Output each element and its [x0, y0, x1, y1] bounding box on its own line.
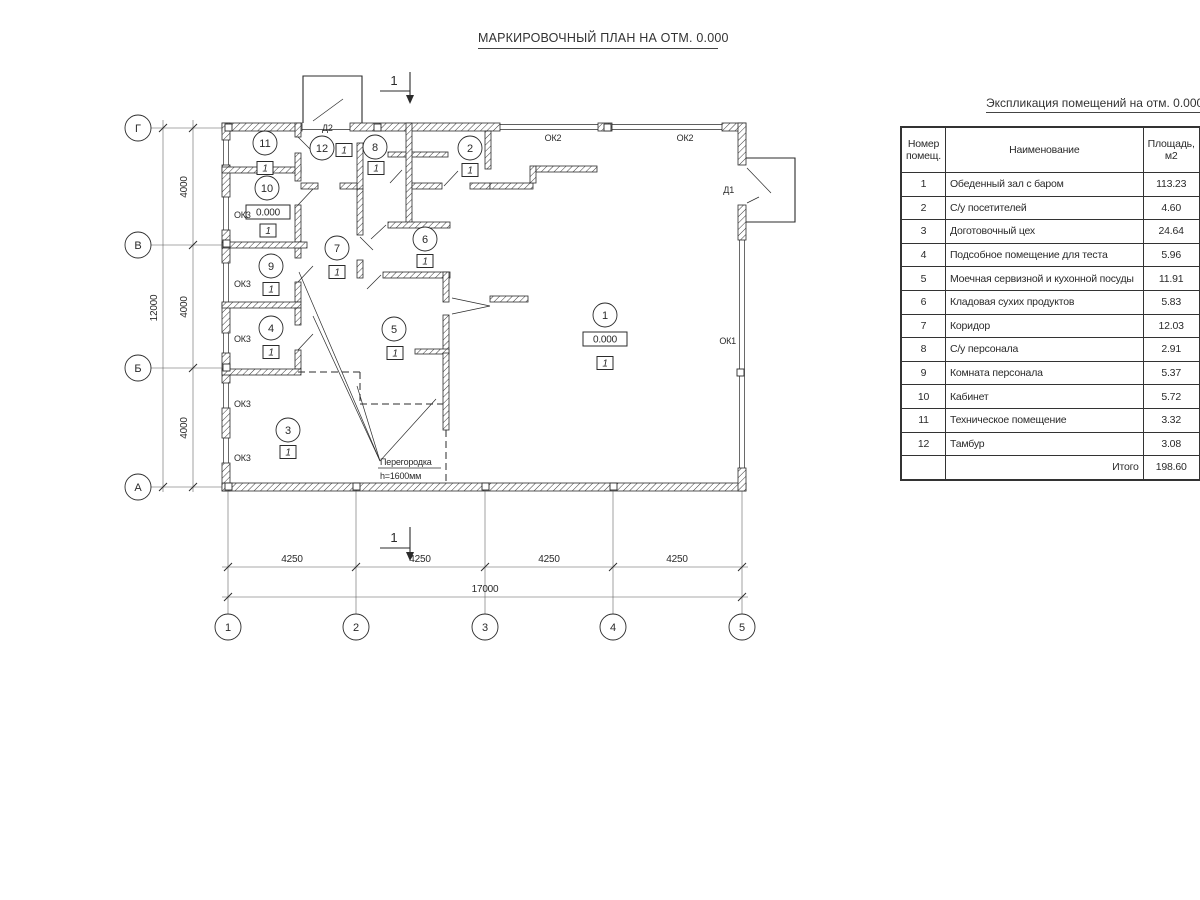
floor-mark: 1 — [392, 349, 397, 360]
table-total-row: Итого198.60 — [901, 456, 1200, 480]
floor-mark: 1 — [373, 164, 378, 175]
level-mark: 0.000 — [256, 208, 281, 219]
table-row: 12Тамбур3.08 — [901, 432, 1200, 456]
axis-label: 4 — [610, 622, 616, 634]
room-area: 2.91 — [1143, 338, 1199, 362]
opening-labels: ОК3 ОК3 ОК3 ОК3 ОК3 ОК2 ОК2 ОК1 Д1 Д2 — [234, 123, 736, 463]
table-row: 7Коридор12.03 — [901, 314, 1200, 338]
interior-walls — [222, 123, 597, 430]
floor-mark: 1 — [268, 348, 273, 359]
room-num: 7 — [901, 314, 945, 338]
room-number: 8 — [372, 142, 378, 154]
section-number: 1 — [390, 530, 397, 545]
dim-4250: 4250 — [538, 554, 560, 565]
table-row: 2С/у посетителей4.60 — [901, 196, 1200, 220]
table-row: 11Техническое помещение3.32 — [901, 408, 1200, 432]
room-number: 9 — [268, 261, 274, 273]
window-label-ok3: ОК3 — [234, 210, 251, 220]
room-area: 3.32 — [1143, 408, 1199, 432]
dim-4000: 4000 — [179, 296, 190, 318]
axis-label: В — [134, 240, 141, 252]
room-area: 12.03 — [1143, 314, 1199, 338]
window-label-ok3: ОК3 — [234, 453, 251, 463]
dim-4250: 4250 — [281, 554, 303, 565]
blueprint-page: { "page_title": "МАРКИРОВОЧНЫЙ ПЛАН НА О… — [0, 0, 1200, 900]
partition-note-line1: Перегородка — [380, 457, 432, 467]
table-row: 1Обеденный зал с баром113.23 — [901, 173, 1200, 197]
dim-4000: 4000 — [179, 417, 190, 439]
section-number: 1 — [390, 73, 397, 88]
room-name: Коридор — [945, 314, 1143, 338]
header-area: Площадь,м2 — [1143, 127, 1199, 173]
dim-4250: 4250 — [666, 554, 688, 565]
room-num: 3 — [901, 220, 945, 244]
room-number: 7 — [334, 243, 340, 255]
room-marks: 11 12 8 2 10 9 7 6 4 5 3 1 — [253, 131, 617, 442]
room-num: 2 — [901, 196, 945, 220]
table-row: 6Кладовая сухих продуктов5.83 — [901, 290, 1200, 314]
room-number: 5 — [391, 324, 397, 336]
window-label-ok1: ОК1 — [719, 336, 736, 346]
axis-label: 3 — [482, 622, 488, 634]
room-schedule-table: Номерпомещ. Наименование Площадь,м2 Капо… — [900, 126, 1200, 481]
room-name: Подсобное помещение для теста — [945, 243, 1143, 267]
room-number: 1 — [602, 310, 608, 322]
room-area: 5.37 — [1143, 361, 1199, 385]
header-room-name: Наименование — [945, 127, 1143, 173]
floor-mark: 1 — [334, 268, 339, 279]
room-name: Кабинет — [945, 385, 1143, 409]
room-area: 4.60 — [1143, 196, 1199, 220]
room-name: С/у посетителей — [945, 196, 1143, 220]
axis-grid: Г В Б А 1 2 3 4 5 — [125, 115, 755, 640]
section-mark-top: 1 — [380, 72, 414, 104]
room-name: Кладовая сухих продуктов — [945, 290, 1143, 314]
room-name: Моечная сервизной и кухонной посуды — [945, 267, 1143, 291]
door-label-d1: Д1 — [723, 185, 734, 195]
room-name: Доготовочный цех — [945, 220, 1143, 244]
room-area: 5.83 — [1143, 290, 1199, 314]
door-label-d2: Д2 — [322, 123, 333, 133]
floor-mark: 1 — [341, 146, 346, 157]
window-label-ok3: ОК3 — [234, 334, 251, 344]
room-area: 113.23 — [1143, 173, 1199, 197]
floor-mark: 1 — [602, 359, 607, 370]
window-label-ok3: ОК3 — [234, 399, 251, 409]
schedule-title: Экспликация помещений на отм. 0.000 — [986, 96, 1200, 113]
floor-mark: 1 — [285, 448, 290, 459]
axis-label: Б — [134, 363, 141, 375]
room-number: 10 — [261, 183, 273, 195]
table-row: 5Моечная сервизной и кухонной посуды11.9… — [901, 267, 1200, 291]
room-num: 12 — [901, 432, 945, 456]
table-row: 8С/у персонала2.91 — [901, 338, 1200, 362]
dim-17000: 17000 — [472, 584, 499, 595]
room-area: 5.96 — [1143, 243, 1199, 267]
room-num: 10 — [901, 385, 945, 409]
room-name: Обеденный зал с баром — [945, 173, 1143, 197]
room-name: Техническое помещение — [945, 408, 1143, 432]
total-label: Итого — [945, 456, 1143, 480]
room-name: С/у персонала — [945, 338, 1143, 362]
room-num: 1 — [901, 173, 945, 197]
window-label-ok2: ОК2 — [677, 133, 694, 143]
floor-mark: 1 — [467, 166, 472, 177]
room-number: 3 — [285, 425, 291, 437]
room-number: 2 — [467, 143, 473, 155]
room-area: 11.91 — [1143, 267, 1199, 291]
dim-4250: 4250 — [409, 554, 431, 565]
room-area: 3.08 — [1143, 432, 1199, 456]
room-number: 11 — [259, 138, 270, 150]
floor-type-marks: 1 1 1 1 1 1 1 1 1 1 1 1 — [257, 144, 613, 459]
dim-4000: 4000 — [179, 176, 190, 198]
axis-label: 2 — [353, 622, 359, 634]
floor-mark: 1 — [265, 226, 270, 237]
room-num: 8 — [901, 338, 945, 362]
partition-note-line2: h=1600мм — [380, 471, 421, 481]
partition-note: Перегородка h=1600мм — [299, 272, 441, 481]
room-num: 4 — [901, 243, 945, 267]
axis-label: 1 — [225, 622, 231, 634]
room-number: 4 — [268, 323, 274, 335]
room-num: 6 — [901, 290, 945, 314]
table-header-row: Номерпомещ. Наименование Площадь,м2 Капо — [901, 127, 1200, 173]
room-num: 5 — [901, 267, 945, 291]
axis-label: Г — [135, 123, 141, 135]
table-row: 9Комната персонала5.37 — [901, 361, 1200, 385]
room-name: Тамбур — [945, 432, 1143, 456]
table-row: 10Кабинет5.72 — [901, 385, 1200, 409]
header-room-number: Номерпомещ. — [901, 127, 945, 173]
room-area: 24.64 — [1143, 220, 1199, 244]
floor-mark: 1 — [268, 285, 273, 296]
table-row: 4Подсобное помещение для теста5.96 — [901, 243, 1200, 267]
page-title: МАРКИРОВОЧНЫЙ ПЛАН НА ОТМ. 0.000 — [478, 31, 718, 49]
axis-label: 5 — [739, 622, 745, 634]
room-num: 9 — [901, 361, 945, 385]
room-name: Комната персонала — [945, 361, 1143, 385]
level-mark: 0.000 — [593, 335, 618, 346]
dim-12000: 12000 — [149, 294, 160, 321]
floor-mark: 1 — [422, 257, 427, 268]
floor-mark: 1 — [262, 164, 267, 175]
table-row: 3Доготовочный цех24.64 — [901, 220, 1200, 244]
room-number: 12 — [316, 143, 328, 155]
room-number: 6 — [422, 234, 428, 246]
total-area: 198.60 — [1143, 456, 1199, 480]
window-label-ok2: ОК2 — [545, 133, 562, 143]
axis-label: А — [134, 482, 142, 494]
room-num: 11 — [901, 408, 945, 432]
window-label-ok3: ОК3 — [234, 279, 251, 289]
room-area: 5.72 — [1143, 385, 1199, 409]
